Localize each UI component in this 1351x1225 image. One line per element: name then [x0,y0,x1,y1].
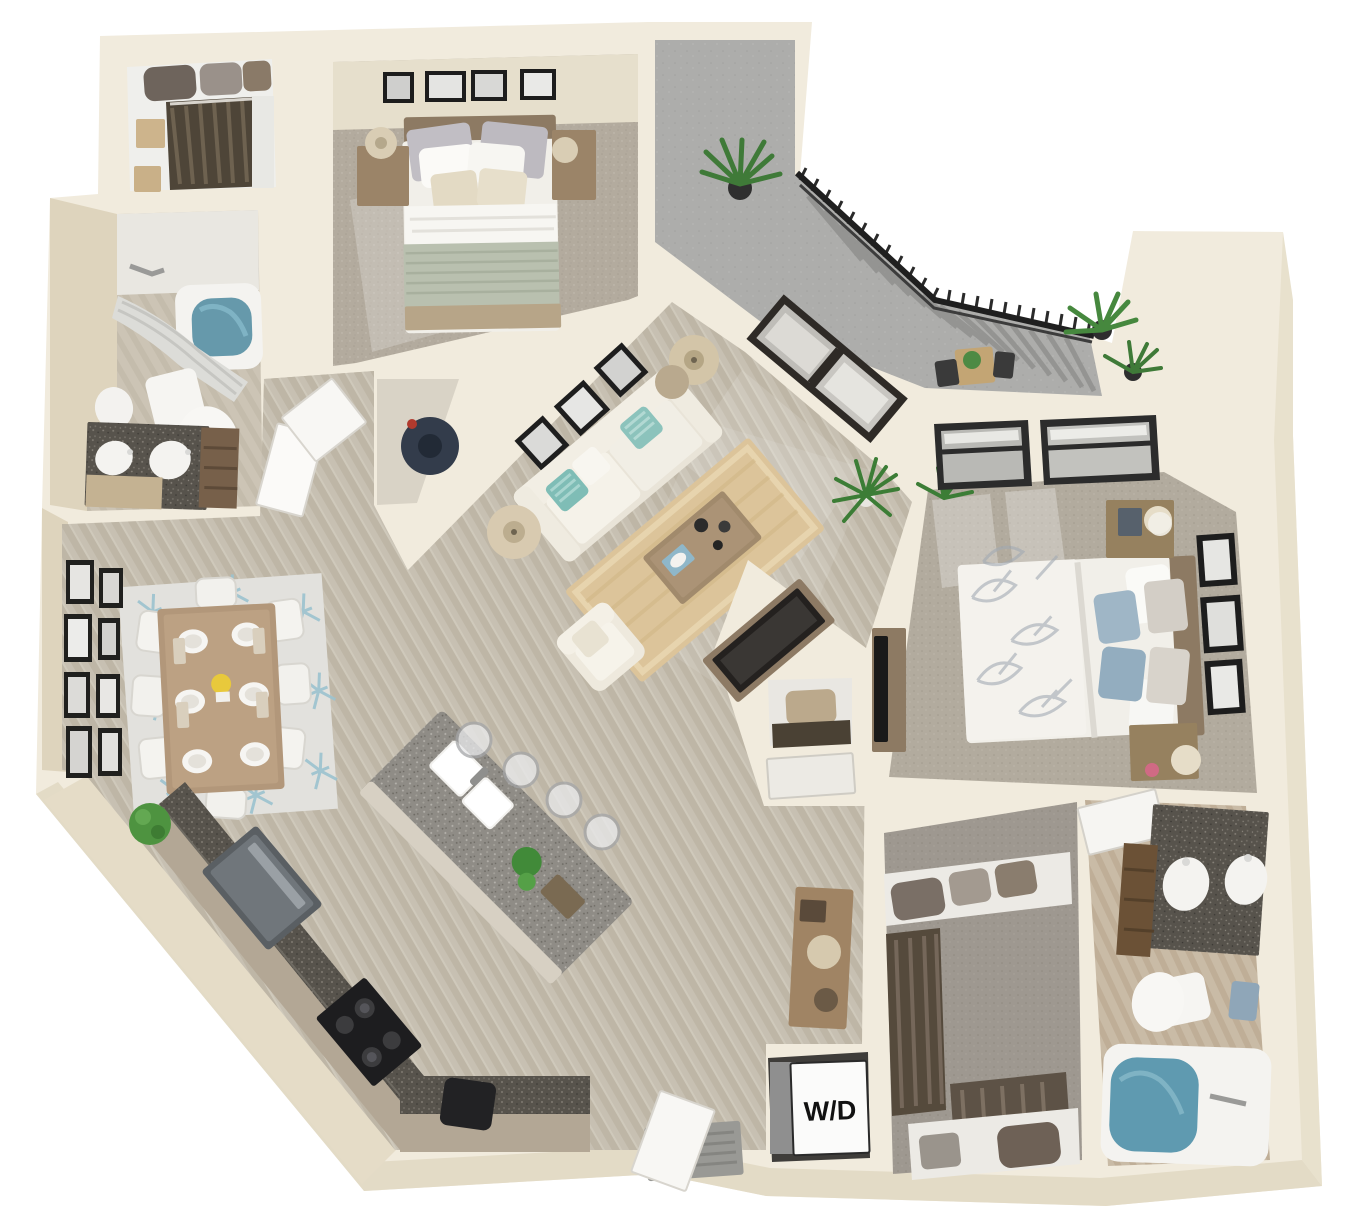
svg-text:W/D: W/D [803,1095,856,1127]
